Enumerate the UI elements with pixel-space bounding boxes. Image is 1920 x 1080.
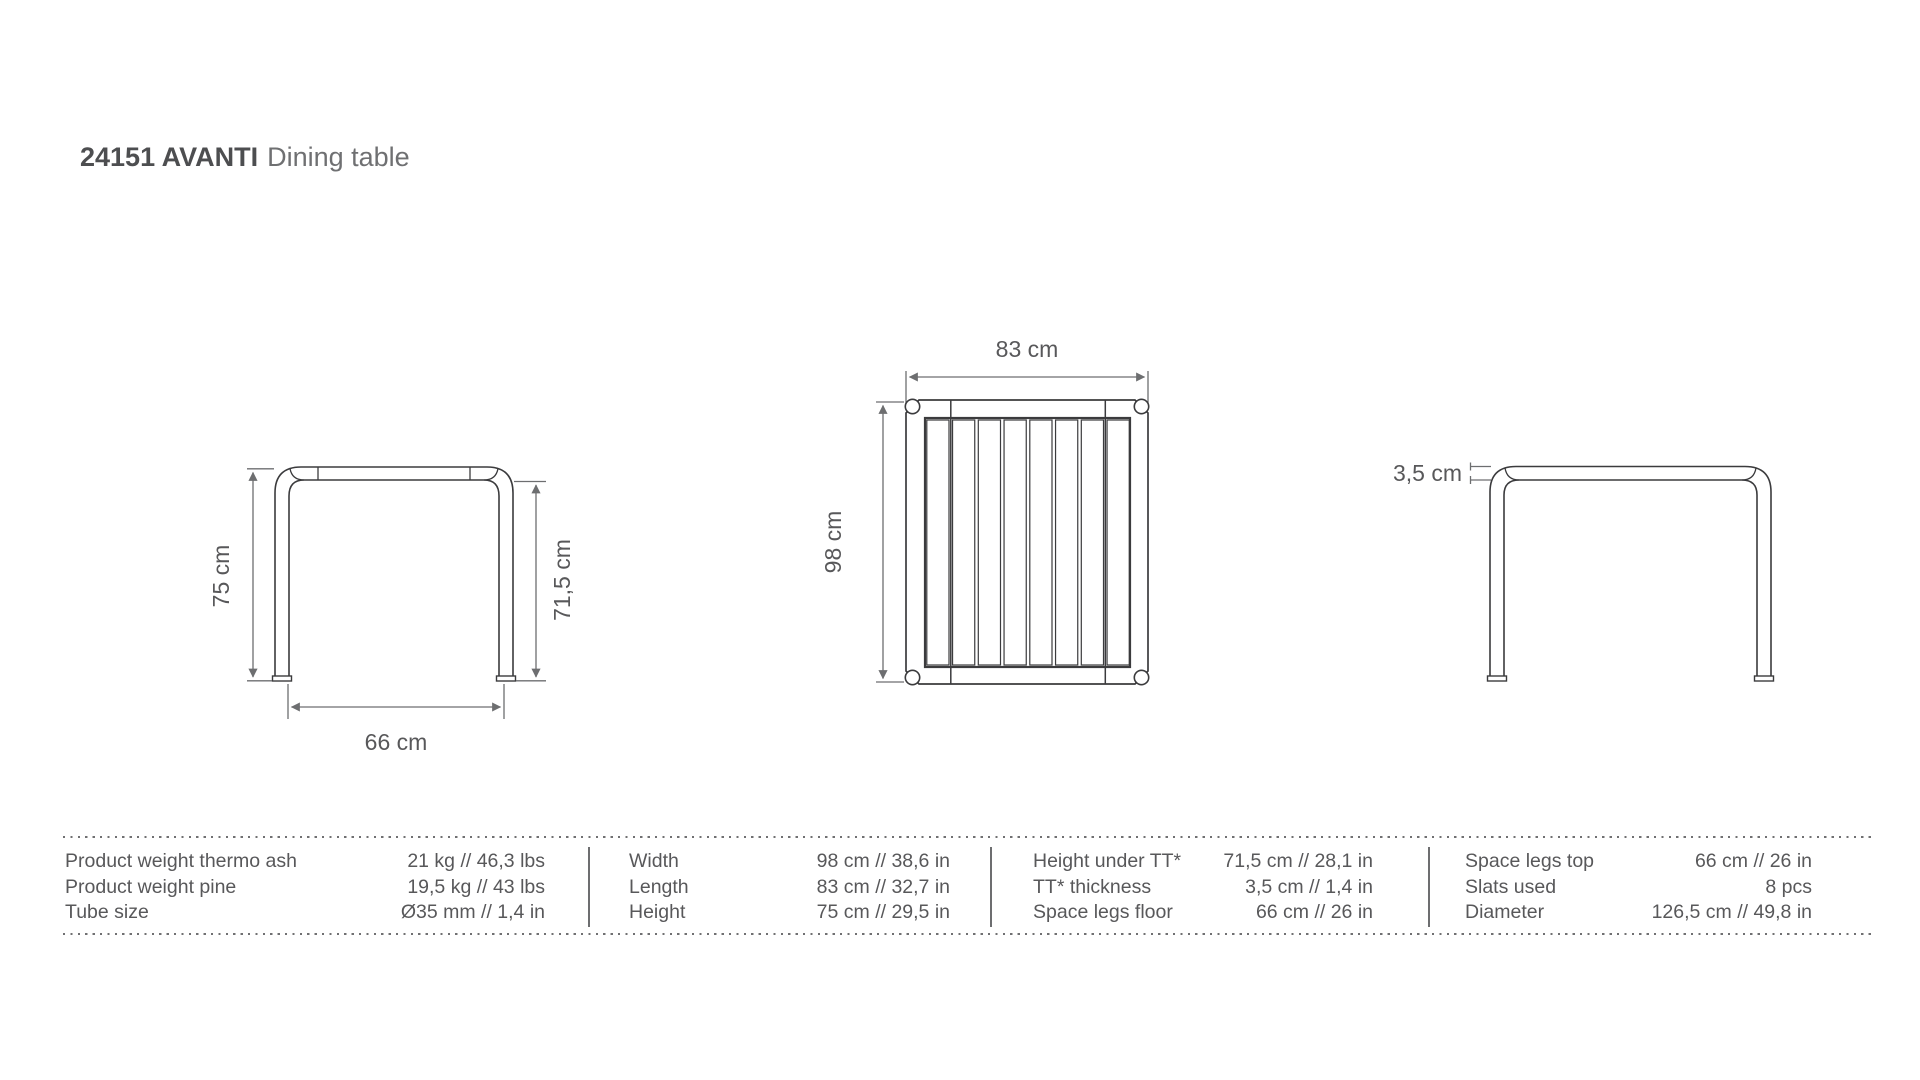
width-dimension: 98 cm: [820, 402, 904, 682]
spec-value: 66 cm // 26 in: [1695, 849, 1812, 875]
length-dimension-label: 83 cm: [996, 336, 1059, 362]
spec-row: Product weight pine 19,5 kg // 43 lbs: [65, 875, 545, 901]
slat: [978, 420, 1000, 665]
column-separator: [1428, 847, 1430, 927]
length-dimension: 83 cm: [906, 336, 1148, 408]
spec-value: 75 cm // 29,5 in: [817, 900, 950, 926]
column-separator: [990, 847, 992, 927]
spec-value: 19,5 kg // 43 lbs: [407, 875, 545, 901]
space-legs-dimension: 66 cm: [288, 684, 504, 755]
tabletop-thickness-label: 3,5 cm: [1393, 460, 1462, 486]
spec-label: Product weight pine: [65, 875, 250, 901]
spec-label: Width: [629, 849, 693, 875]
spec-column-weights: Product weight thermo ash 21 kg // 46,3 …: [65, 849, 545, 926]
table-bottom-dotted-rule: [63, 933, 1871, 935]
spec-value: Ø35 mm // 1,4 in: [401, 900, 545, 926]
slat: [1081, 420, 1103, 665]
product-code-name: 24151 AVANTI: [80, 142, 258, 172]
spec-value: 66 cm // 26 in: [1256, 900, 1373, 926]
space-legs-dimension-label: 66 cm: [365, 729, 428, 755]
spec-label: Height under TT*: [1033, 849, 1195, 875]
product-type: Dining table: [267, 142, 410, 172]
spec-row: Space legs floor 66 cm // 26 in: [1033, 900, 1373, 926]
top-view-tabletop: [905, 399, 1148, 684]
spec-label: Tube size: [65, 900, 163, 926]
height-under-top-dimension-label: 71,5 cm: [549, 539, 575, 621]
spec-row: Height under TT* 71,5 cm // 28,1 in: [1033, 849, 1373, 875]
slat: [1107, 420, 1129, 665]
page-title: 24151 AVANTIDining table: [80, 141, 410, 173]
front-view-table-frame: [273, 467, 516, 681]
spec-row: Diameter 126,5 cm // 49,8 in: [1465, 900, 1812, 926]
spec-row: Space legs top 66 cm // 26 in: [1465, 849, 1812, 875]
spec-label: Space legs top: [1465, 849, 1608, 875]
leg-foot: [1755, 676, 1774, 681]
spec-label: Space legs floor: [1033, 900, 1187, 926]
leg-top: [905, 399, 919, 413]
spec-row: Length 83 cm // 32,7 in: [629, 875, 950, 901]
height-under-top-dimension: 71,5 cm: [514, 482, 575, 681]
front-view-drawing: 75 cm 71,5 cm 66 cm: [200, 430, 600, 770]
spec-value: 3,5 cm // 1,4 in: [1245, 875, 1373, 901]
top-view-drawing: 83 cm 98 cm: [810, 320, 1170, 700]
spec-row: Product weight thermo ash 21 kg // 46,3 …: [65, 849, 545, 875]
spec-row: Height 75 cm // 29,5 in: [629, 900, 950, 926]
spec-label: Height: [629, 900, 699, 926]
spec-value: 21 kg // 46,3 lbs: [407, 849, 545, 875]
side-view-drawing: 3,5 cm: [1370, 430, 1800, 700]
width-dimension-label: 98 cm: [820, 511, 846, 574]
leg-foot: [497, 676, 516, 681]
slat: [1056, 420, 1078, 665]
spec-row: TT* thickness 3,5 cm // 1,4 in: [1033, 875, 1373, 901]
spec-value: 126,5 cm // 49,8 in: [1652, 900, 1812, 926]
table-top-dotted-rule: [63, 836, 1871, 838]
slat: [927, 420, 949, 665]
slat: [1004, 420, 1026, 665]
spec-column-clearances: Height under TT* 71,5 cm // 28,1 in TT* …: [1033, 849, 1373, 926]
leg-foot: [1488, 676, 1507, 681]
leg-top: [1134, 399, 1148, 413]
height-dimension: 75 cm: [208, 469, 274, 681]
leg-foot: [273, 676, 292, 681]
spec-label: Slats used: [1465, 875, 1570, 901]
slats-group: [927, 420, 1129, 665]
spec-value: 71,5 cm // 28,1 in: [1223, 849, 1373, 875]
slat: [1030, 420, 1052, 665]
spec-value: 8 pcs: [1765, 875, 1812, 901]
spec-label: Product weight thermo ash: [65, 849, 311, 875]
height-dimension-label: 75 cm: [208, 545, 234, 608]
spec-row: Slats used 8 pcs: [1465, 875, 1812, 901]
leg-top: [1134, 670, 1148, 684]
leg-top: [905, 670, 919, 684]
side-view-table-frame: [1488, 467, 1774, 682]
spec-column-misc: Space legs top 66 cm // 26 in Slats used…: [1465, 849, 1812, 926]
spec-label: TT* thickness: [1033, 875, 1165, 901]
spec-row: Tube size Ø35 mm // 1,4 in: [65, 900, 545, 926]
slat: [953, 420, 975, 665]
spec-label: Length: [629, 875, 703, 901]
tabletop-thickness-dimension: 3,5 cm: [1393, 460, 1491, 486]
spec-label: Diameter: [1465, 900, 1558, 926]
column-separator: [588, 847, 590, 927]
spec-column-dimensions: Width 98 cm // 38,6 in Length 83 cm // 3…: [629, 849, 950, 926]
spec-value: 83 cm // 32,7 in: [817, 875, 950, 901]
spec-row: Width 98 cm // 38,6 in: [629, 849, 950, 875]
spec-value: 98 cm // 38,6 in: [817, 849, 950, 875]
